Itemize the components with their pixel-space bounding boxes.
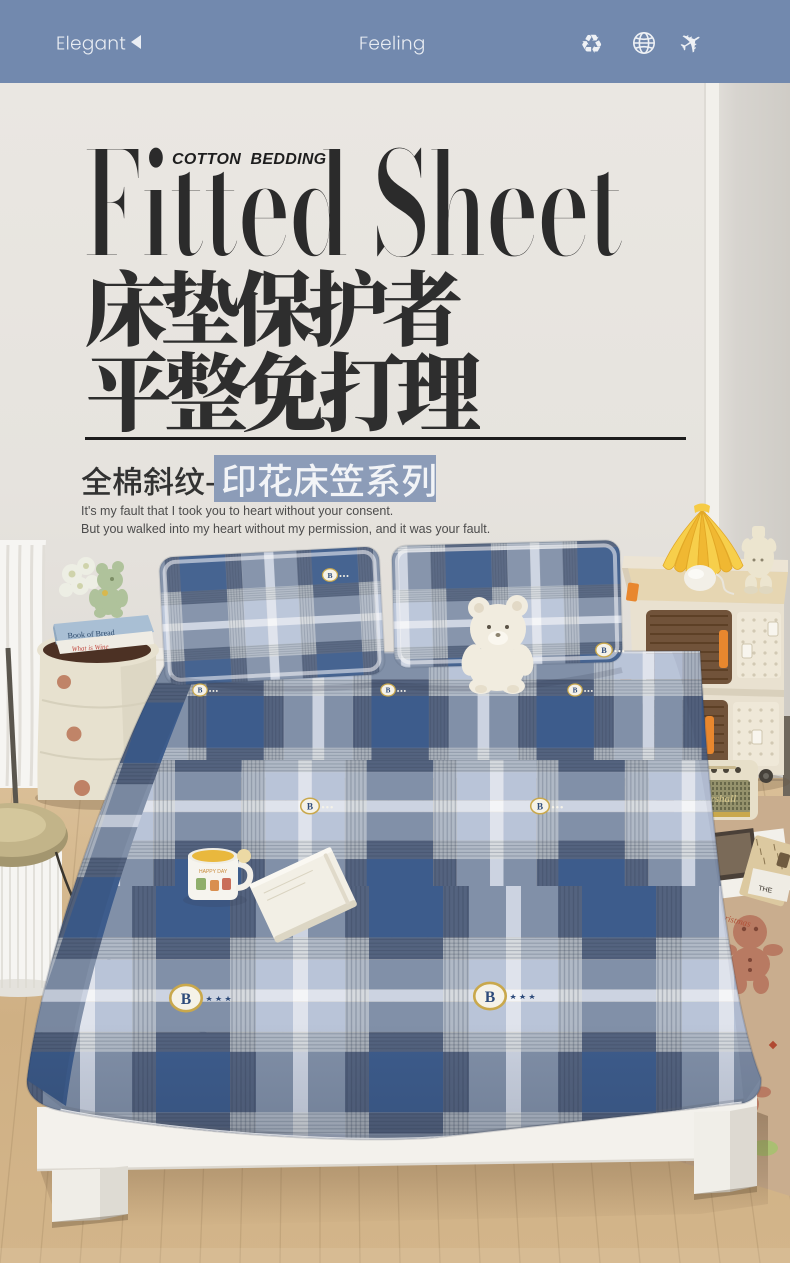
svg-text:B: B [307,802,313,812]
svg-text:B: B [327,571,332,580]
svg-text:B: B [198,687,203,695]
svg-text:HAPPY DAY: HAPPY DAY [199,869,228,875]
svg-text:B: B [386,687,391,695]
svg-text:B: B [573,687,578,695]
svg-text:B: B [485,989,496,1006]
svg-text:B: B [601,646,607,655]
svg-text:B: B [537,802,543,812]
svg-text:B: B [181,991,192,1008]
